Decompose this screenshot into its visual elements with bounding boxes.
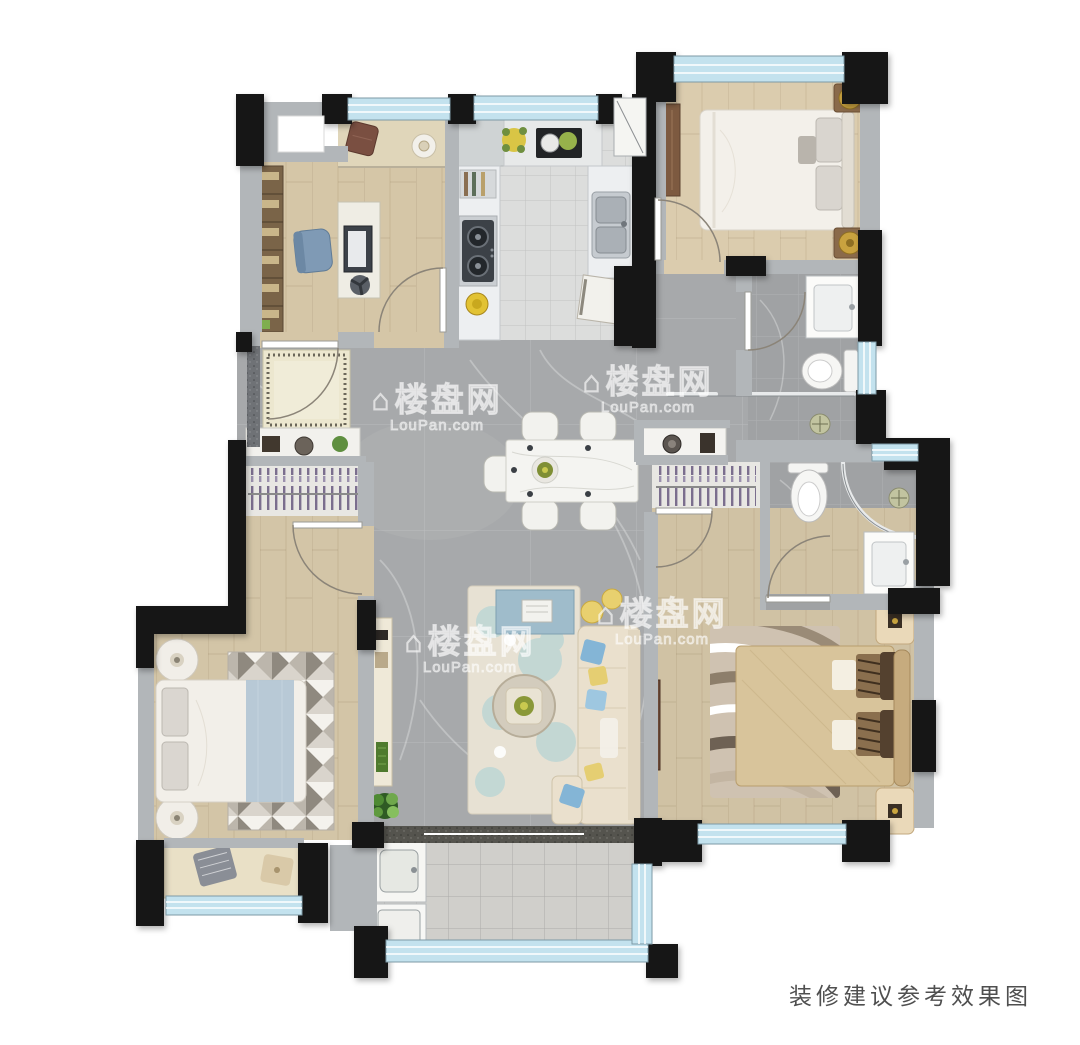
bed-double — [156, 680, 306, 802]
window — [674, 56, 844, 82]
pillow-white — [832, 660, 856, 690]
bedroom-left — [156, 639, 334, 839]
pillow-yellow — [588, 666, 609, 687]
entry-door — [614, 98, 646, 156]
pillow — [162, 742, 188, 790]
pillow-zebra — [856, 654, 882, 698]
bay-window-seat — [164, 845, 302, 898]
vanity-sink — [864, 532, 914, 594]
decor-plant — [332, 436, 348, 452]
decor-plate — [295, 437, 313, 455]
window — [858, 342, 876, 394]
gas-stove — [459, 216, 497, 286]
floor-plan-page: ⌂楼盘网 LouPan.com ⌂楼盘网 LouPan.com ⌂楼盘网 Lou… — [0, 0, 1080, 1045]
ac-platform — [278, 116, 324, 152]
shower-glass — [668, 394, 854, 396]
pillow — [816, 166, 842, 210]
side-table-round — [581, 601, 603, 623]
floor-plan-rendering — [0, 0, 1080, 1045]
window — [166, 896, 302, 915]
window — [632, 864, 652, 944]
master-closet — [656, 466, 756, 506]
dining-table — [506, 440, 638, 502]
shower-head — [810, 414, 830, 434]
shower-head — [889, 488, 909, 508]
coffee-table — [493, 675, 555, 737]
window — [474, 96, 598, 120]
potted-plant — [372, 793, 399, 819]
vanity-sink — [806, 276, 860, 338]
left-closet — [248, 468, 360, 510]
desk-chair — [293, 228, 333, 274]
laundry-sink — [372, 842, 426, 902]
kitchen-sink — [592, 192, 630, 258]
window — [348, 98, 450, 120]
pillow — [816, 118, 842, 162]
bed-double — [700, 110, 854, 230]
window — [872, 444, 918, 461]
toilet — [802, 350, 858, 392]
pillow-zebra — [856, 712, 882, 756]
pillow-white — [832, 720, 856, 750]
side-table-round — [602, 589, 622, 609]
accent-pillow — [798, 136, 816, 164]
headboard — [842, 112, 854, 228]
plant-small — [261, 320, 270, 329]
pillow-blue — [585, 689, 608, 712]
vegetable — [559, 132, 577, 150]
decor-box — [700, 433, 715, 453]
pillow — [162, 688, 188, 736]
bed-runner — [246, 680, 294, 802]
desk-fan — [350, 275, 370, 295]
window — [386, 940, 648, 962]
caption: 装修建议参考效果图 — [789, 977, 1032, 1011]
headboard — [894, 650, 910, 786]
window — [698, 824, 846, 844]
throw-blanket — [600, 718, 618, 758]
left-hall-cabinet — [246, 428, 360, 460]
decor-box — [262, 436, 280, 452]
bed-master — [736, 646, 910, 786]
